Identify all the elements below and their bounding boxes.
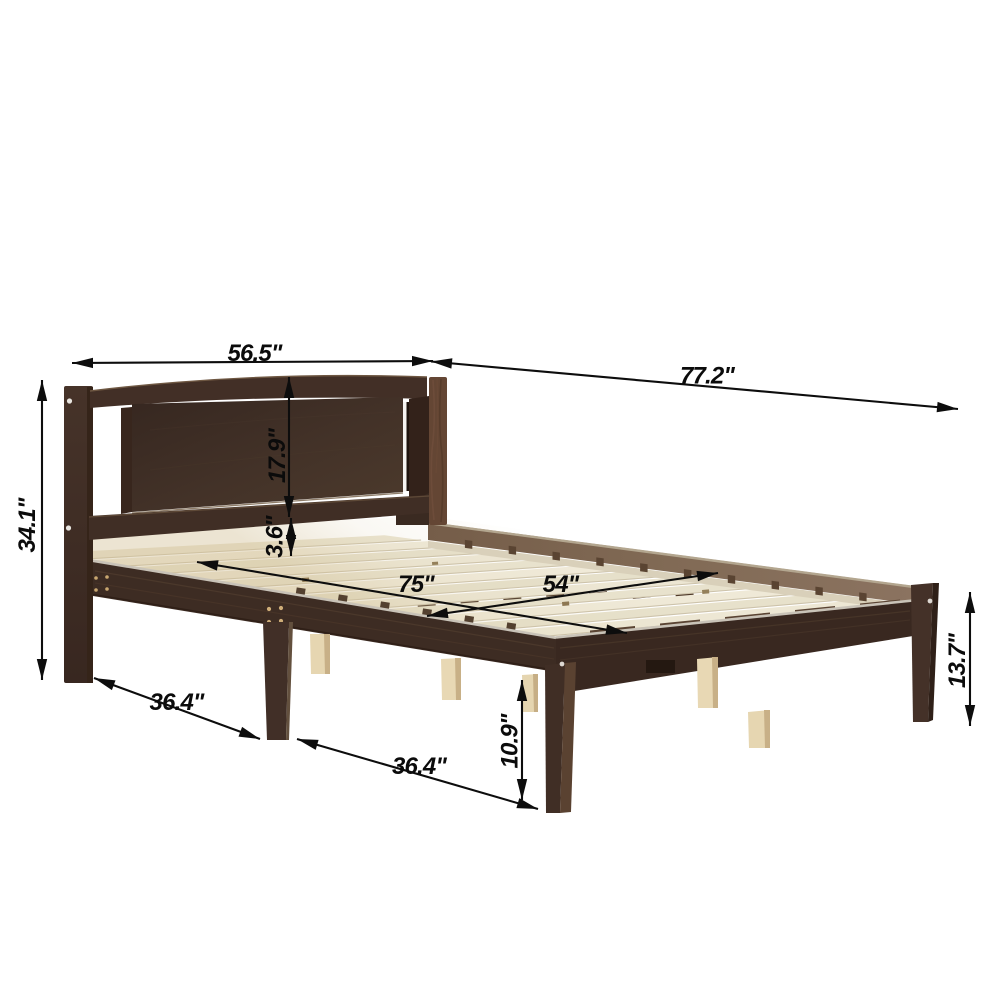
svg-text:36.4": 36.4" bbox=[392, 753, 448, 780]
svg-text:75": 75" bbox=[398, 571, 435, 598]
svg-text:56.5": 56.5" bbox=[227, 340, 283, 367]
svg-text:13.7": 13.7" bbox=[944, 633, 971, 689]
svg-text:10.9": 10.9" bbox=[497, 713, 524, 769]
svg-text:17.9": 17.9" bbox=[264, 428, 291, 484]
svg-text:77.2": 77.2" bbox=[680, 363, 736, 390]
svg-text:3.6": 3.6" bbox=[262, 515, 289, 558]
svg-text:36.4": 36.4" bbox=[150, 689, 206, 716]
svg-text:54": 54" bbox=[543, 571, 580, 598]
svg-text:34.1": 34.1" bbox=[14, 497, 41, 553]
